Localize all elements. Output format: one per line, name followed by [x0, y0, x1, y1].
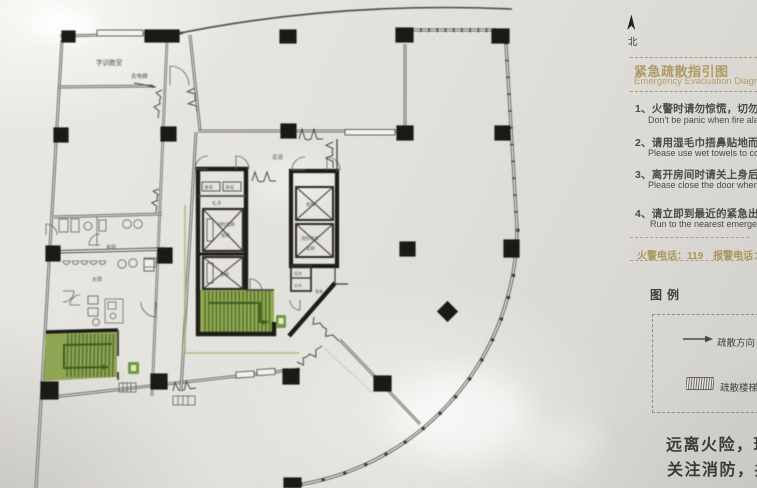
svg-text:水井: 水井 — [294, 282, 302, 288]
svg-text:速号: 速号 — [204, 185, 214, 191]
svg-text:客梯: 客梯 — [306, 245, 315, 252]
svg-text:女厕: 女厕 — [92, 276, 102, 283]
svg-text:消防电梯: 消防电梯 — [301, 235, 319, 242]
svg-text:礼子: 礼子 — [212, 200, 222, 207]
svg-text:字训教室: 字训教室 — [96, 58, 123, 67]
svg-text:风井: 风井 — [294, 270, 302, 276]
svg-text:客梯: 客梯 — [221, 232, 230, 239]
svg-text:客梯: 客梯 — [220, 271, 229, 278]
svg-text:消号: 消号 — [225, 184, 235, 191]
svg-text:客梯: 客梯 — [306, 201, 315, 208]
svg-text:强电: 强电 — [315, 288, 323, 294]
svg-text:走道: 走道 — [272, 153, 284, 161]
svg-text:消防电梯: 消防电梯 — [217, 221, 235, 228]
svg-text:去电梯: 去电梯 — [131, 72, 148, 80]
